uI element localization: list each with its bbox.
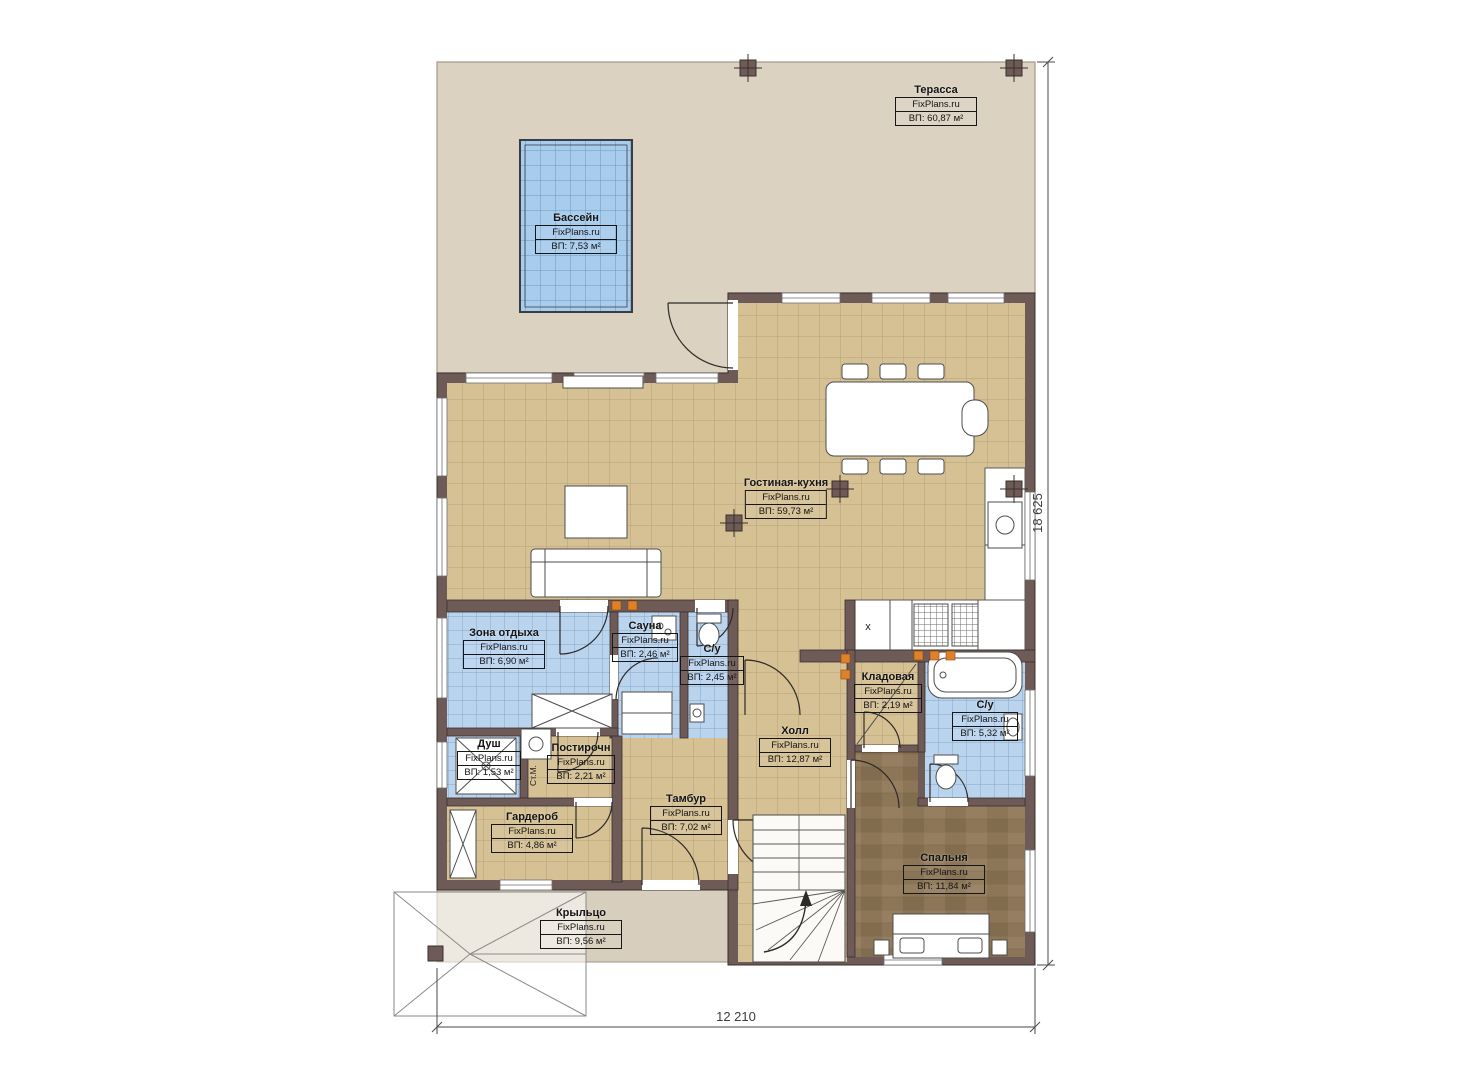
floor-plan: Ст.М. х 18 625 12 210 bbox=[0, 0, 1473, 1080]
room-label-wc1: С/у FixPlans.ruВП: 2,45 м² bbox=[680, 643, 744, 685]
room-brand: FixPlans.ru bbox=[541, 921, 621, 935]
room-label-porch: Крыльцо FixPlans.ruВП: 9,56 м² bbox=[540, 907, 622, 949]
room-name: Душ bbox=[457, 738, 521, 750]
stairs bbox=[753, 815, 845, 962]
room-area: ВП: 2,46 м² bbox=[613, 648, 677, 661]
room-area: ВП: 6,90 м² bbox=[464, 655, 544, 668]
sink-cross-label: х bbox=[865, 621, 871, 633]
room-brand: FixPlans.ru bbox=[536, 226, 616, 240]
room-name: Постирочн bbox=[547, 742, 615, 754]
room-label-storage: Кладовая FixPlans.ruВП: 2,19 м² bbox=[854, 671, 922, 713]
room-area: ВП: 4,86 м² bbox=[492, 839, 572, 852]
coffee-table bbox=[565, 486, 627, 538]
room-label-wc2: С/у FixPlans.ruВП: 5,32 м² bbox=[952, 699, 1018, 741]
room-label-terrace: Терасса FixPlans.ruВП: 60,87 м² bbox=[895, 84, 977, 126]
room-brand: FixPlans.ru bbox=[613, 634, 677, 648]
room-area: ВП: 60,87 м² bbox=[896, 112, 976, 125]
room-area: ВП: 2,45 м² bbox=[681, 671, 743, 684]
room-name: Гостиная-кухня bbox=[744, 477, 828, 489]
room-name: Терасса bbox=[895, 84, 977, 96]
room-name: Крыльцо bbox=[540, 907, 622, 919]
room-label-bedroom: Спальня FixPlans.ruВП: 11,84 м² bbox=[903, 852, 985, 894]
room-brand: FixPlans.ru bbox=[855, 685, 921, 699]
room-label-laundry: Постирочн FixPlans.ruВП: 2,21 м² bbox=[547, 742, 615, 784]
room-name: Тамбур bbox=[650, 793, 722, 805]
wardrobe-cabinet bbox=[532, 694, 612, 728]
dimension-width: 12 210 bbox=[716, 1009, 756, 1024]
room-brand: FixPlans.ru bbox=[904, 866, 984, 880]
wardrobe-closet bbox=[450, 810, 476, 878]
washer-label: Ст.М. bbox=[528, 765, 538, 786]
room-label-shower: Душ FixPlans.ruВП: 1,53 м² bbox=[457, 738, 521, 780]
room-area: ВП: 2,19 м² bbox=[855, 699, 921, 712]
room-brand: FixPlans.ru bbox=[746, 491, 826, 505]
room-area: ВП: 1,53 м² bbox=[458, 766, 520, 779]
room-brand: FixPlans.ru bbox=[760, 739, 830, 753]
room-area: ВП: 59,73 м² bbox=[746, 505, 826, 518]
room-label-vestibule: Тамбур FixPlans.ruВП: 7,02 м² bbox=[650, 793, 722, 835]
room-area: ВП: 7,02 м² bbox=[651, 821, 721, 834]
room-brand: FixPlans.ru bbox=[548, 756, 614, 770]
room-brand: FixPlans.ru bbox=[492, 825, 572, 839]
bed bbox=[874, 914, 1007, 958]
dimension-height: 18 625 bbox=[1030, 493, 1045, 533]
room-area: ВП: 12,87 м² bbox=[760, 753, 830, 766]
room-brand: FixPlans.ru bbox=[464, 641, 544, 655]
room-label-lounge: Зона отдыха FixPlans.ruВП: 6,90 м² bbox=[463, 627, 545, 669]
room-name: Кладовая bbox=[854, 671, 922, 683]
room-area: ВП: 9,56 м² bbox=[541, 935, 621, 948]
room-name: С/у bbox=[952, 699, 1018, 711]
room-brand: FixPlans.ru bbox=[651, 807, 721, 821]
room-brand: FixPlans.ru bbox=[896, 98, 976, 112]
room-name: Зона отдыха bbox=[463, 627, 545, 639]
room-area: ВП: 2,21 м² bbox=[548, 770, 614, 783]
room-area: ВП: 11,84 м² bbox=[904, 880, 984, 893]
room-brand: FixPlans.ru bbox=[458, 752, 520, 766]
room-brand: FixPlans.ru bbox=[681, 657, 743, 671]
room-area: ВП: 7,53 м² bbox=[536, 240, 616, 253]
room-name: Спальня bbox=[903, 852, 985, 864]
bathtub bbox=[928, 652, 1022, 698]
room-name: Сауна bbox=[612, 620, 678, 632]
room-label-pool: Бассейн FixPlans.ruВП: 7,53 м² bbox=[535, 212, 617, 254]
sofa bbox=[531, 549, 661, 597]
room-name: Бассейн bbox=[535, 212, 617, 224]
room-name: Гардероб bbox=[491, 811, 573, 823]
room-label-living: Гостиная-кухня FixPlans.ruВП: 59,73 м² bbox=[744, 477, 828, 519]
room-label-sauna: Сауна FixPlans.ruВП: 2,46 м² bbox=[612, 620, 678, 662]
tv-console bbox=[563, 376, 643, 388]
room-label-wardrobe: Гардероб FixPlans.ruВП: 4,86 м² bbox=[491, 811, 573, 853]
room-area: ВП: 5,32 м² bbox=[953, 727, 1017, 740]
room-brand: FixPlans.ru bbox=[953, 713, 1017, 727]
room-label-hall: Холл FixPlans.ruВП: 12,87 м² bbox=[759, 725, 831, 767]
kitchen-sink bbox=[988, 502, 1022, 548]
room-name: С/у bbox=[680, 643, 744, 655]
room-name: Холл bbox=[759, 725, 831, 737]
